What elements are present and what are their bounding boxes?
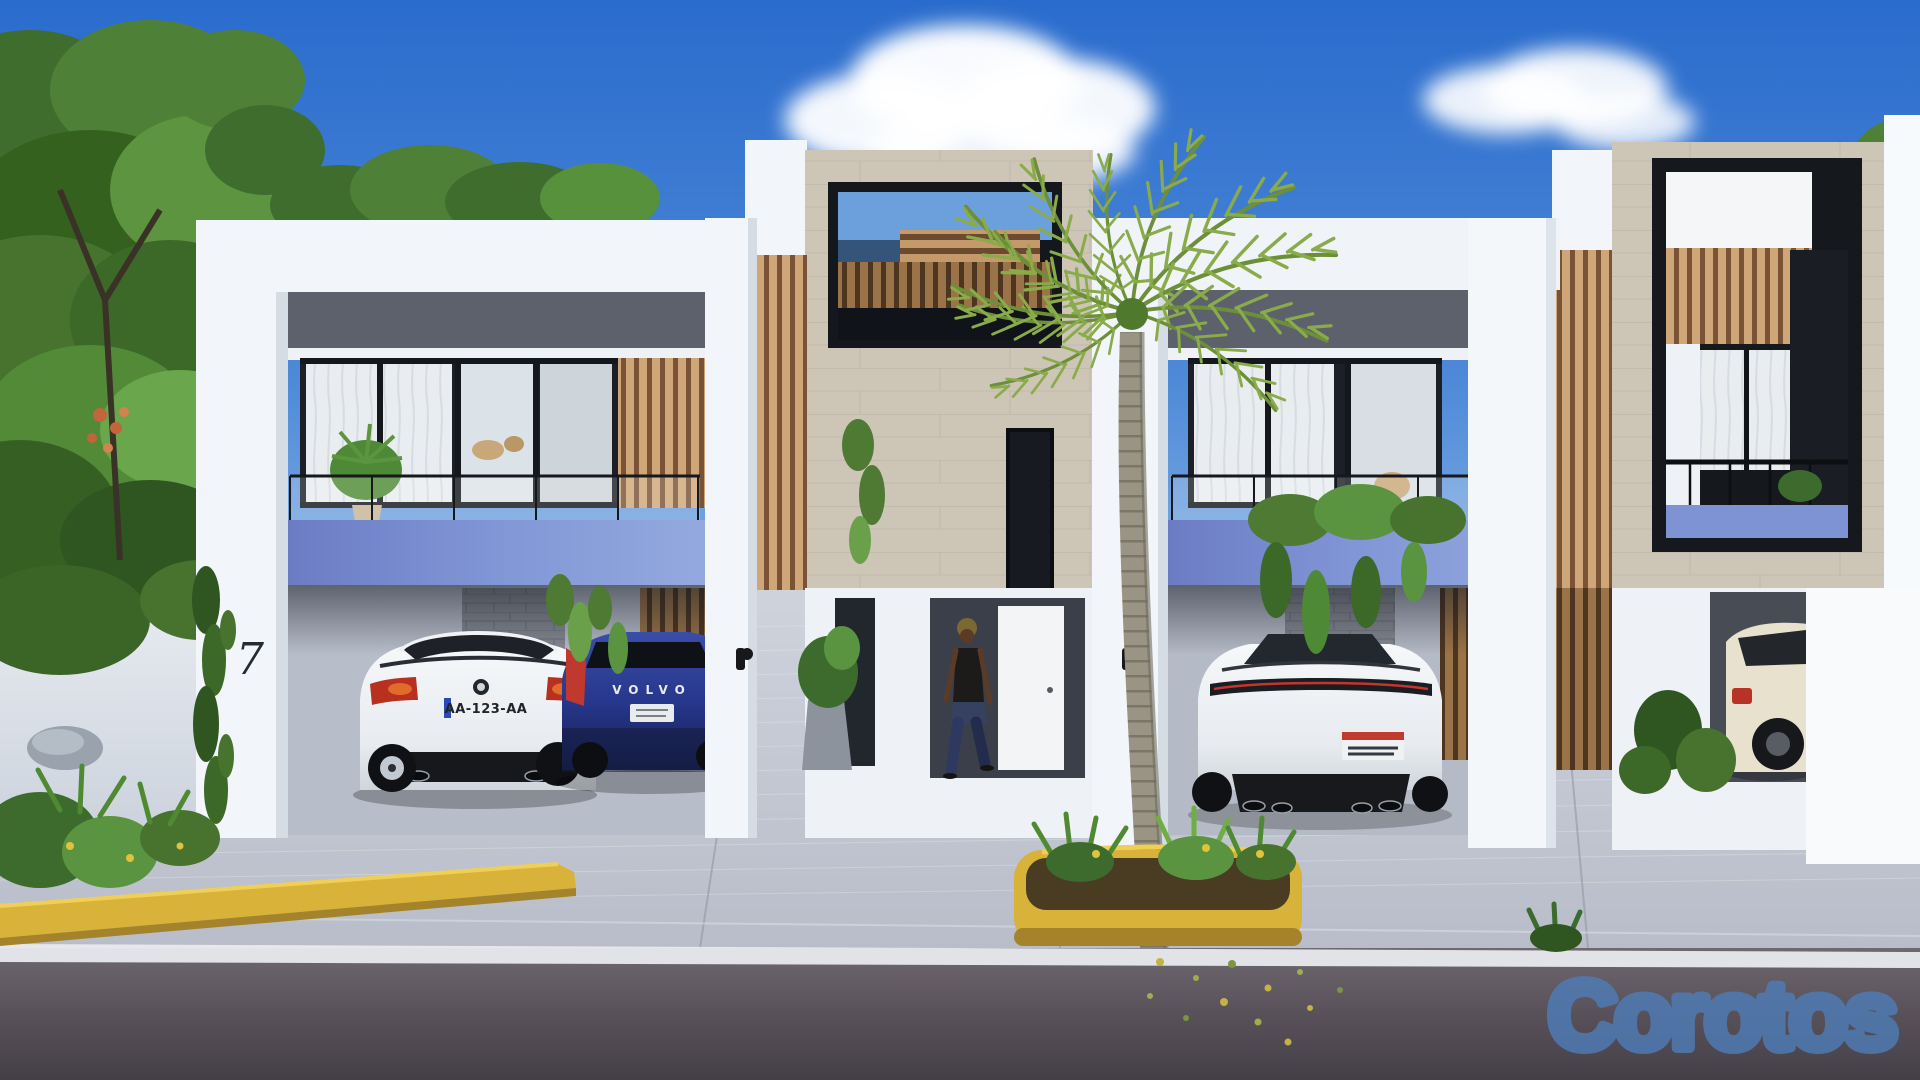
unit4-blue-floor-band <box>1666 505 1848 538</box>
unit1-white-townhouse: AA-123-AA VOLVO <box>192 218 757 838</box>
door-knob <box>1047 687 1053 693</box>
front-door <box>998 606 1064 770</box>
unit4-wood-slat-strip <box>1552 250 1612 588</box>
unit4-front-pillar <box>1806 588 1920 864</box>
divider-pillar-2 <box>1468 218 1556 848</box>
unit1-top-band <box>196 220 756 292</box>
house-number: 7 <box>236 634 264 685</box>
unit3-white-townhouse <box>1092 218 1560 848</box>
suv-taillight <box>1732 688 1752 704</box>
dining-set <box>472 440 504 460</box>
architectural-render: AA-123-AA VOLVO <box>0 0 1920 1080</box>
terrace-slat-railing <box>838 262 1052 308</box>
unit4-right-parapet <box>1884 115 1920 590</box>
scene-canvas: AA-123-AA VOLVO <box>0 0 1920 1080</box>
bmw-plate-text: AA-123-AA <box>445 702 528 717</box>
unit4-stone-townhouse <box>1552 115 1920 864</box>
corotos-watermark: Corotos <box>1548 962 1895 1069</box>
unit1-concrete-band <box>288 292 705 348</box>
unit2-side-window <box>1008 430 1052 600</box>
unit4-frame-window <box>1652 158 1862 552</box>
volvo-plate <box>630 704 674 722</box>
unit1-carport: AA-123-AA VOLVO <box>288 585 745 835</box>
volvo-lettering: VOLVO <box>612 683 692 697</box>
unit1-blue-band <box>288 520 705 585</box>
suv-partial <box>1725 623 1815 781</box>
planter-pot <box>802 700 852 770</box>
unit2-entrance <box>798 588 1093 838</box>
